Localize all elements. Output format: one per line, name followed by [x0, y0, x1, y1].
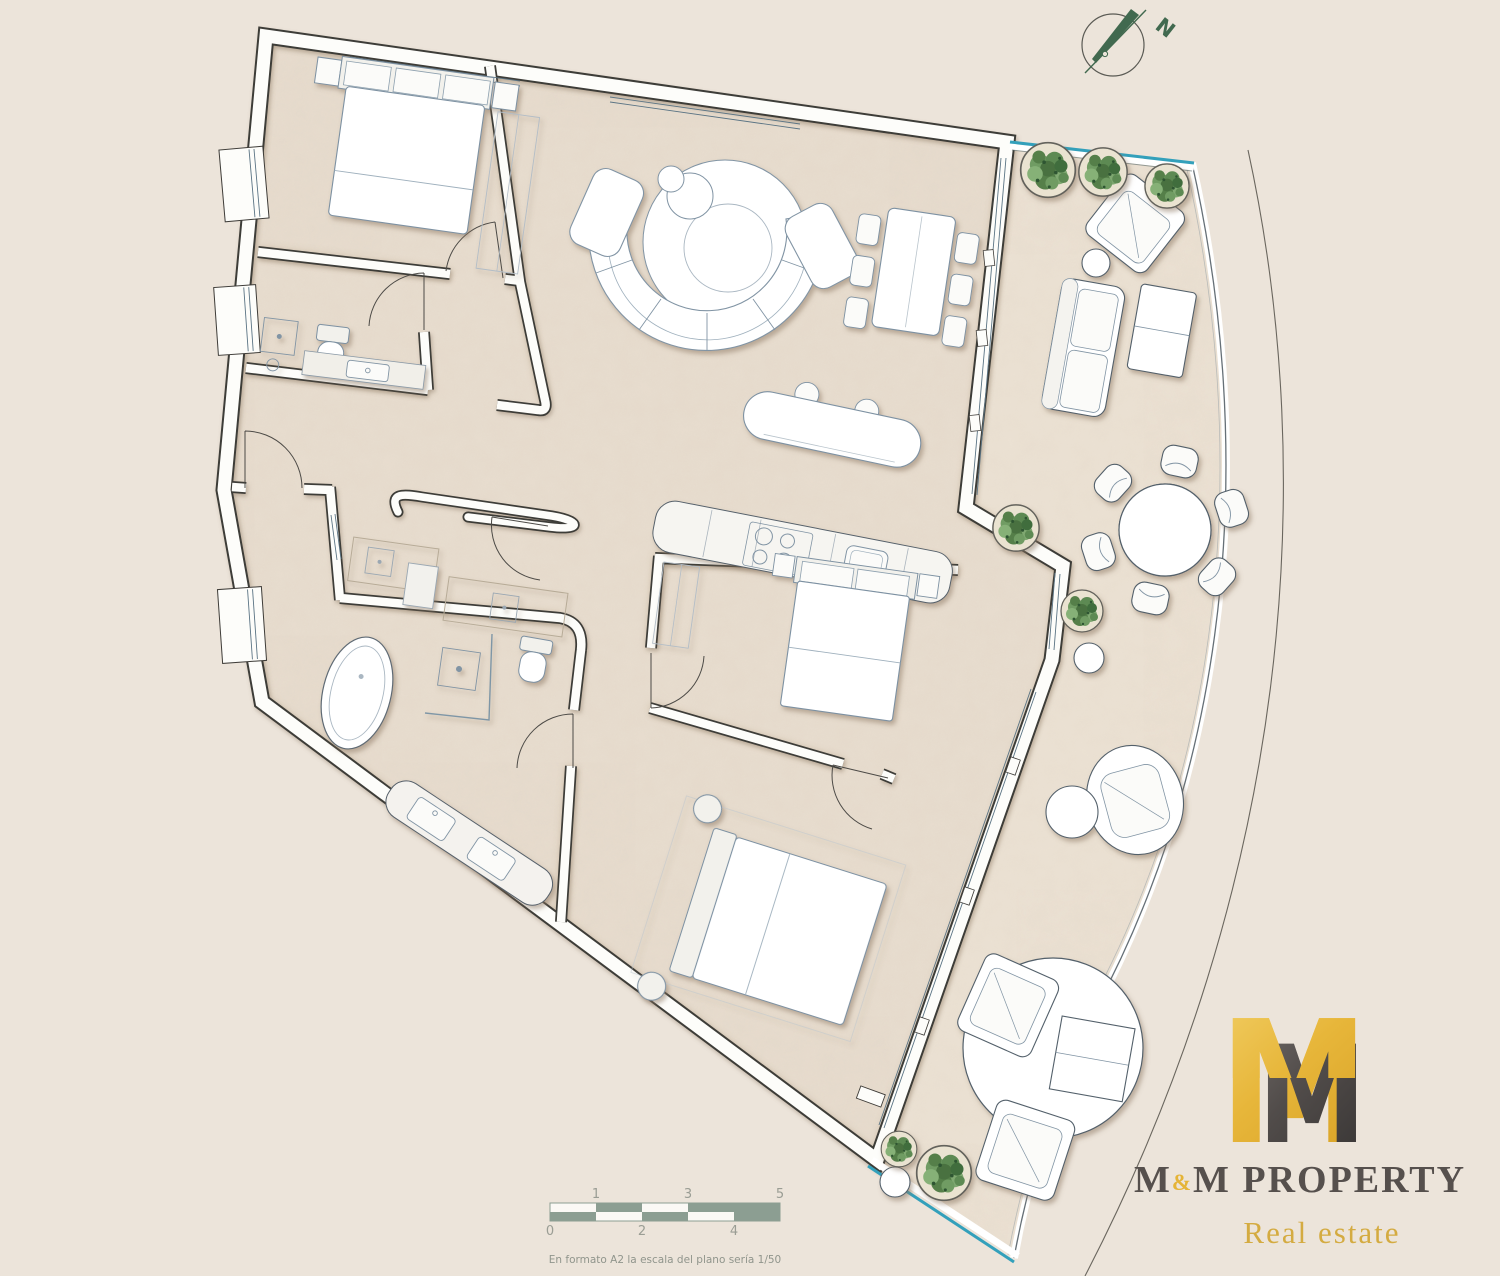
logo-tagline: Real estate	[1243, 1215, 1400, 1250]
dining-chair	[843, 296, 869, 329]
dining-chair	[947, 273, 973, 306]
terrace-ottoman	[1046, 786, 1098, 838]
toilet-tank	[316, 324, 350, 344]
scale-caption: En formato A2 la escala del plano sería …	[549, 1254, 781, 1266]
scale-tick-1: 1	[592, 1187, 600, 1202]
dining-chair	[954, 232, 980, 265]
dining-chair	[855, 213, 881, 246]
logo-wordmark-m1: M	[1134, 1159, 1172, 1201]
mattress	[328, 86, 485, 234]
nightstand	[772, 553, 795, 578]
dining-chair	[941, 315, 967, 348]
nightstand	[917, 574, 940, 599]
terrace-stool	[880, 1167, 910, 1197]
scale-tick-3: 3	[684, 1187, 692, 1202]
scale-tick-2: 2	[638, 1224, 646, 1239]
terrace-stool	[1074, 643, 1104, 673]
logo-wordmark-amp: &	[1172, 1170, 1193, 1195]
scale-tick-5: 5	[776, 1187, 784, 1202]
floor-plan-image: N M M M M&M PROPERTY Real estate 1 3 5 0…	[0, 0, 1500, 1276]
nightstand	[314, 57, 341, 86]
scale-tick-4: 4	[730, 1224, 738, 1239]
mattress	[780, 581, 909, 722]
scale-tick-0: 0	[546, 1224, 554, 1239]
terrace-square-table	[1049, 1016, 1135, 1102]
dining-chair	[849, 255, 875, 288]
floorplan-page: N M M M M&M PROPERTY Real estate 1 3 5 0…	[0, 0, 1500, 1276]
side-table	[658, 166, 684, 192]
logo-wordmark-m2: M PROPERTY	[1193, 1159, 1466, 1201]
nightstand	[492, 82, 519, 111]
terrace-side-table	[1082, 249, 1110, 277]
